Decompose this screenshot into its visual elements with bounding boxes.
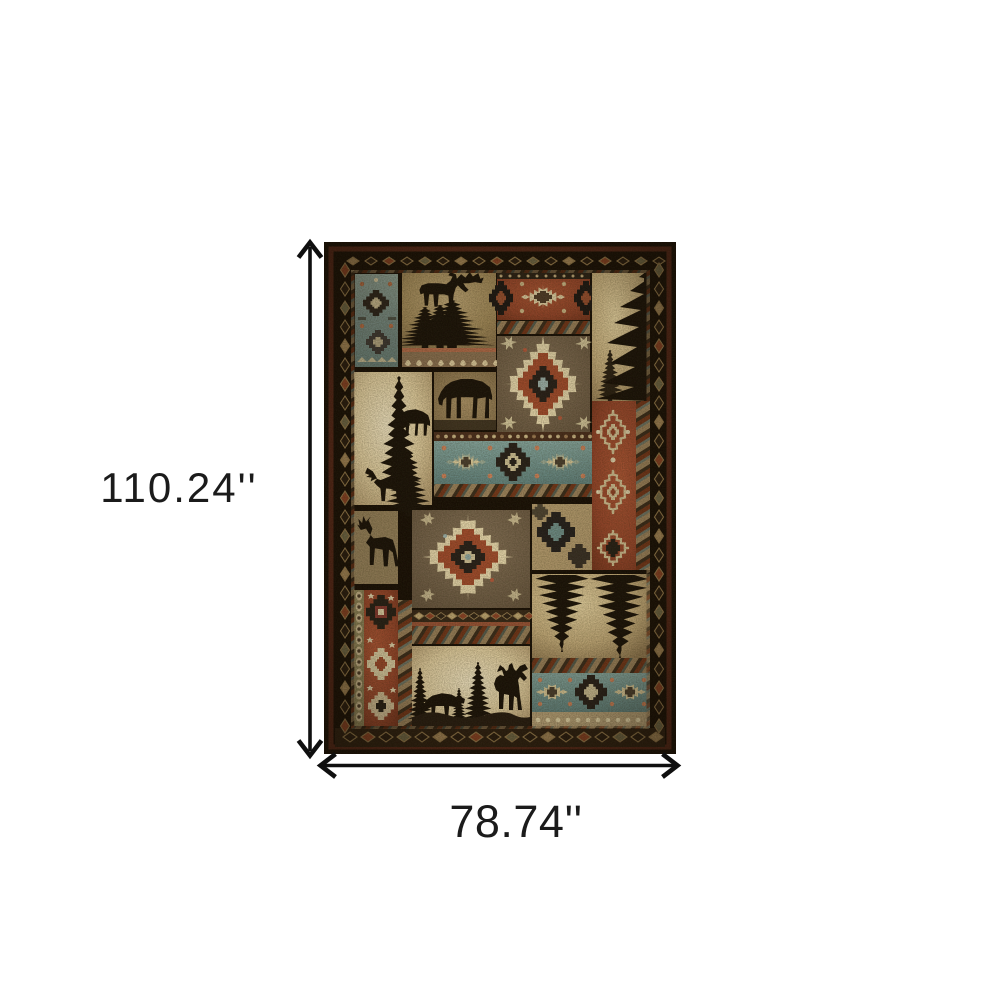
- svg-text:78.74'': 78.74'': [449, 796, 582, 847]
- svg-text:110.24'': 110.24'': [100, 464, 257, 511]
